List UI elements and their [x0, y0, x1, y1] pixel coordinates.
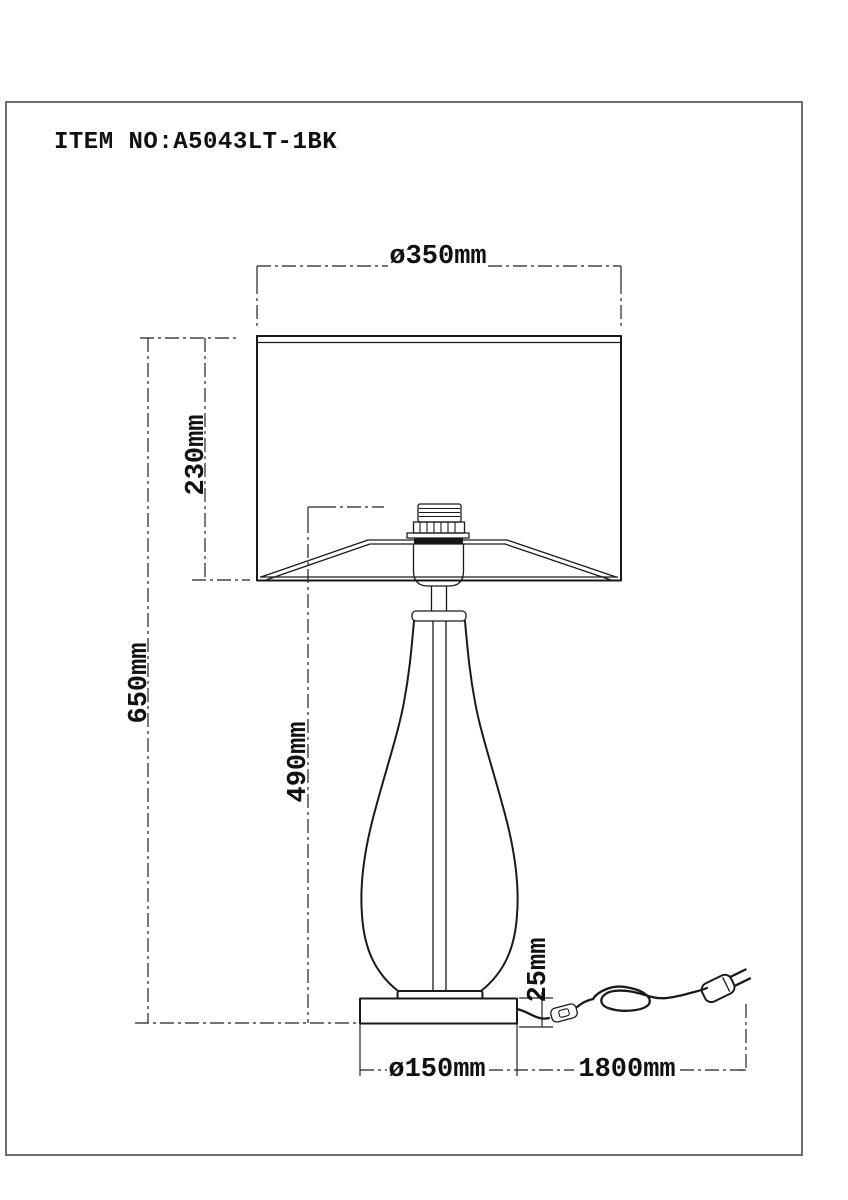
dimension-shade-diameter: ø350mm	[257, 242, 621, 330]
plug-pin	[735, 978, 750, 985]
socket-knurled-ring	[414, 522, 465, 533]
dim-shade-height-label: 230mm	[182, 414, 212, 495]
glass-body	[361, 621, 517, 999]
shade-inner-rim-2	[266, 544, 611, 580]
dim-base-height-label: 25mm	[524, 938, 554, 1003]
shade-inner-rim	[261, 540, 616, 577]
lamp-shade	[257, 336, 621, 581]
dim-cord-length-label: 1800mm	[578, 1055, 675, 1085]
lamp-socket	[407, 504, 469, 621]
drawing-page: ITEM NO:A5043LT-1BK	[0, 0, 848, 1200]
dim-base-diameter-label: ø150mm	[388, 1055, 485, 1085]
socket-dark-ring	[414, 539, 463, 544]
dimension-body-height: 490mm	[284, 507, 384, 1023]
dimension-base-height: 25mm	[519, 938, 554, 1027]
inline-switch	[550, 1003, 579, 1023]
glass-foot-plate	[398, 991, 483, 999]
dim-body-height-label: 490mm	[284, 721, 314, 802]
dim-shade-diameter-label: ø350mm	[389, 242, 486, 272]
dim-total-height-label: 650mm	[125, 642, 155, 723]
lamp-technical-drawing: ø350mm 650mm 230mm 490mm 25m	[0, 0, 848, 1200]
dimension-shade-height: 230mm	[182, 338, 250, 580]
plug-pin	[730, 969, 745, 976]
neck-collar	[412, 611, 466, 621]
dimension-base-diameter: ø150mm	[360, 1024, 574, 1085]
socket-washer	[407, 533, 469, 538]
cord-coil	[593, 987, 683, 1011]
lamp-base	[360, 999, 517, 1024]
center-rod	[433, 621, 446, 991]
power-plug	[699, 965, 752, 1004]
dimension-cord-length: 1800mm	[578, 1004, 746, 1085]
dimension-total-height: 650mm	[125, 338, 358, 1023]
